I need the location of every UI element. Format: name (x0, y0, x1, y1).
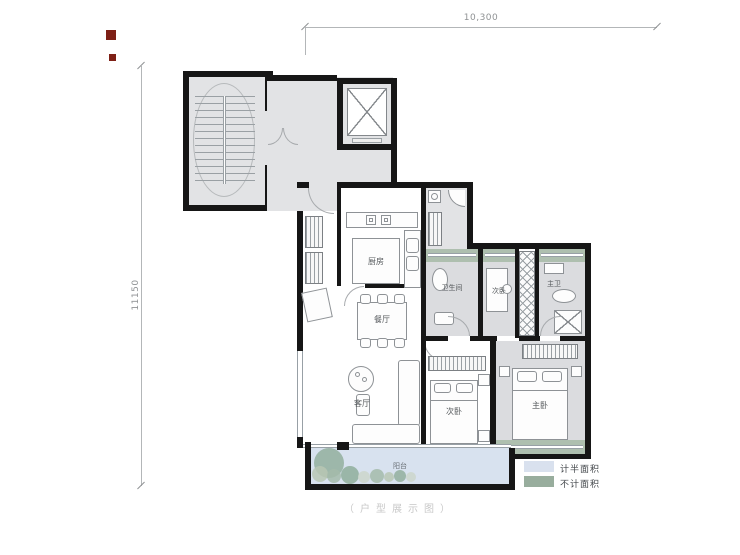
chair-icon (377, 338, 388, 348)
plant-icon (327, 469, 341, 483)
window-icon (297, 351, 303, 437)
wall (183, 71, 189, 211)
chair-icon (377, 294, 388, 304)
sink-icon (406, 238, 419, 253)
elevator-sill (352, 138, 382, 143)
wall (421, 341, 426, 444)
stove-burner-icon (369, 218, 373, 222)
window-icon (428, 253, 476, 257)
stove-burner-icon (384, 218, 388, 222)
chair-icon (360, 294, 371, 304)
pillow-icon (517, 371, 537, 382)
legend-label-excluded-area: 不计面积 (560, 477, 600, 490)
top-dimension-label: 10,300 (441, 13, 521, 23)
room-label-bathroom: 卫生间 (426, 283, 478, 293)
elevator-wall (337, 144, 397, 150)
decor-icon (362, 377, 367, 382)
legend-swatch-half-area (524, 461, 554, 472)
top-dimension-extension (305, 27, 306, 55)
room-label-bedroom2-upper: 次卧 (483, 286, 515, 296)
elevator-shaft-icon (347, 88, 387, 136)
wall (585, 249, 591, 459)
closet-icon (428, 212, 442, 246)
plant-icon (406, 472, 416, 482)
plant-icon (358, 471, 370, 483)
duct-shaft-icon (519, 251, 535, 336)
left-dimension-line (141, 66, 142, 486)
bathroom-sink-icon (544, 263, 564, 274)
wall (337, 442, 349, 450)
blanket-line (513, 390, 567, 391)
chair-icon (394, 338, 405, 348)
closet-icon (305, 252, 323, 284)
nightstand-icon (499, 366, 510, 377)
plant-icon (341, 466, 359, 484)
plant-icon (312, 466, 328, 482)
wall (305, 484, 515, 490)
pillow-icon (434, 383, 451, 393)
room-label-balcony: 阳台 (380, 461, 420, 471)
logo-mark-icon (106, 30, 116, 40)
nightstand-icon (478, 374, 490, 386)
pillow-icon (542, 371, 562, 382)
wall (297, 211, 303, 351)
legend-label-half-area: 计半面积 (560, 462, 600, 475)
room-label-bedroom2-lower: 次卧 (430, 406, 478, 417)
entry-cabinet (301, 288, 333, 323)
plant-icon (370, 469, 384, 483)
elevator-wall (391, 78, 397, 150)
sink-icon (406, 256, 419, 271)
wall (509, 448, 515, 490)
wardrobe-icon (428, 356, 486, 371)
watermark-text: （户型展示图） (310, 500, 490, 515)
blanket-line (431, 400, 477, 401)
toilet-icon (552, 289, 576, 303)
coffee-table-icon (348, 366, 374, 392)
floor-plan: 10,300 11150 (0, 0, 740, 555)
window-icon (485, 253, 517, 257)
stair-center-rail (223, 96, 226, 184)
plant-icon (384, 472, 394, 482)
legend-swatch-excluded-area (524, 476, 554, 487)
washer-drum-icon (431, 193, 438, 200)
elevator-wall (337, 78, 343, 150)
nightstand-icon (478, 430, 490, 442)
chair-icon (360, 338, 371, 348)
wall (183, 71, 273, 77)
logo-mark-icon (109, 54, 116, 61)
sofa-icon (398, 360, 420, 426)
left-dimension-label: 11150 (131, 265, 141, 325)
pillow-icon (456, 383, 473, 393)
room-label-master-bedroom: 主卧 (512, 400, 568, 411)
room-label-dining: 餐厅 (357, 314, 407, 325)
room-label-master-bath: 主卫 (539, 279, 569, 289)
elevator-wall (337, 78, 397, 84)
sofa-icon (352, 424, 420, 444)
top-dimension-line (305, 27, 657, 28)
wall (183, 205, 273, 211)
nightstand-icon (571, 366, 582, 377)
wall (305, 442, 311, 490)
window-icon (303, 444, 511, 448)
wall (535, 249, 539, 338)
closet-icon (305, 216, 323, 248)
decor-icon (355, 372, 360, 377)
room-label-kitchen: 厨房 (352, 256, 400, 267)
plant-icon (394, 470, 406, 482)
room-label-living: 客厅 (342, 398, 382, 409)
chair-icon (394, 294, 405, 304)
wardrobe-icon (522, 344, 578, 359)
wall (337, 188, 341, 286)
window-icon (541, 253, 583, 257)
wall (267, 75, 337, 81)
wall (467, 182, 473, 249)
